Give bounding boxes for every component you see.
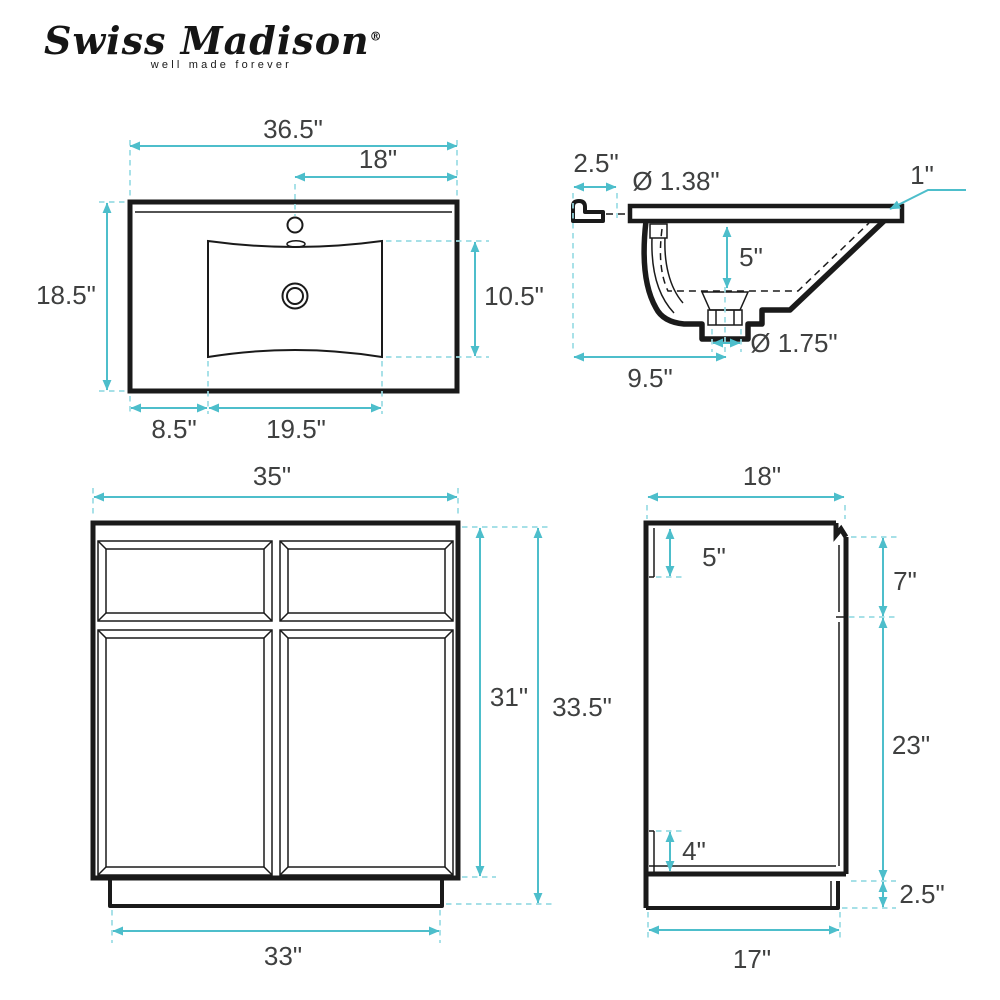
dimension-label: 2.5"	[573, 148, 618, 178]
dimension-label: Ø 1.75"	[750, 328, 837, 358]
dimension-label: 7"	[893, 566, 917, 596]
dim-bottom-back-panel: 4"	[656, 831, 706, 871]
dimension-label: 2.5"	[899, 879, 944, 909]
dim-top-back-panel: 5"	[656, 529, 726, 577]
miter-line	[264, 867, 272, 875]
panel-inner	[106, 638, 264, 867]
miter-line	[264, 541, 272, 549]
dimension-label: 17"	[733, 944, 771, 974]
cabinet-body-outline	[93, 523, 458, 878]
dimension-label: Ø 1.38"	[632, 166, 719, 196]
dimension-label: 35"	[253, 461, 291, 491]
countertop-outline	[130, 202, 457, 391]
miter-line	[280, 613, 288, 621]
dimension-label: 5"	[739, 242, 763, 272]
miter-line	[264, 613, 272, 621]
plinth-side	[646, 881, 838, 908]
miter-line	[445, 541, 453, 549]
dim-countertop-thickness: 1"	[890, 160, 966, 209]
miter-line	[445, 867, 453, 875]
panel-outer	[98, 541, 272, 621]
dim-faucet-hole-diameter: Ø 1.38"	[632, 166, 719, 196]
dim-toe-kick-height: 2.5"	[842, 879, 945, 909]
side-top-notch	[836, 523, 846, 537]
cabinet-side-view: 18" 5" 7" 23" 2.5"	[646, 461, 945, 974]
door-panel-left	[98, 630, 272, 875]
upper-panel-right	[280, 541, 453, 621]
countertop-section	[630, 206, 902, 221]
dimension-label: 23"	[892, 730, 930, 760]
dim-backsplash-depth: 2.5"	[573, 148, 619, 352]
dim-drawer-front-side: 7"	[849, 537, 917, 617]
sink-top-view: 36.5" 18" 18.5" 10.5"	[36, 114, 544, 444]
dim-faucet-to-right-edge: 18"	[295, 144, 457, 216]
upper-panel-left	[98, 541, 272, 621]
basin-wall-section	[644, 221, 884, 339]
drain-inner	[287, 288, 303, 304]
panel-outer	[98, 630, 272, 875]
side-back-and-top	[646, 523, 836, 908]
dimension-label: 9.5"	[627, 363, 672, 393]
faucet-hole	[288, 218, 303, 233]
panel-outer	[280, 630, 453, 875]
panel-outer	[280, 541, 453, 621]
dimension-label: 8.5"	[151, 414, 196, 444]
dimension-label: 1"	[910, 160, 934, 190]
miter-line	[445, 613, 453, 621]
dim-door-front-side: 23"	[851, 618, 930, 881]
cabinet-front-view: 35" 31" 33.5" 33"	[93, 461, 612, 971]
dim-base-depth: 17"	[648, 912, 840, 974]
spec-sheet: Swiss Madison® well made forever 36.5"	[0, 0, 1000, 1000]
miter-line	[98, 630, 106, 638]
overflow-channel-line	[665, 238, 683, 303]
dim-total-height: 33.5"	[446, 528, 612, 904]
backsplash-profile	[573, 201, 603, 221]
dim-overall-width: 36.5"	[130, 114, 457, 198]
plinth-front	[110, 880, 442, 906]
miter-line	[264, 630, 272, 638]
door-panel-right	[280, 630, 453, 875]
dimension-label: 19.5"	[266, 414, 326, 444]
miter-line	[445, 630, 453, 638]
dimension-label: 5"	[702, 542, 726, 572]
dimension-label: 4"	[682, 836, 706, 866]
miter-line	[98, 613, 106, 621]
dim-drain-diameter: Ø 1.75"	[712, 328, 838, 358]
miter-line	[98, 867, 106, 875]
dim-overall-depth: 18.5"	[36, 202, 127, 391]
dim-cabinet-width: 35"	[93, 461, 458, 518]
dim-basin-depth: 5"	[727, 227, 763, 288]
miter-line	[280, 630, 288, 638]
dimension-label: 18"	[359, 144, 397, 174]
dimension-label: 36.5"	[263, 114, 323, 144]
basin-hidden-line	[660, 223, 869, 291]
basin-outline	[208, 241, 382, 357]
dim-basin-width: 19.5"	[209, 361, 382, 444]
panel-inner	[288, 638, 445, 867]
dimension-label: 33.5"	[552, 692, 612, 722]
dim-cabinet-depth: 18"	[647, 461, 845, 519]
dim-left-edge-to-basin: 8.5"	[130, 361, 208, 444]
dim-back-to-drain-center: 9.5"	[574, 357, 726, 393]
panel-inner	[106, 549, 264, 613]
panel-inner	[288, 549, 445, 613]
dim-basin-front-to-back: 10.5"	[386, 241, 544, 357]
dim-base-width: 33"	[112, 910, 440, 971]
dimension-label: 18.5"	[36, 280, 96, 310]
miter-line	[280, 541, 288, 549]
miter-line	[98, 541, 106, 549]
sink-section-view: 2.5" Ø 1.38" 1" 5" Ø 1.75" 9.5"	[573, 148, 966, 393]
drawing-canvas: 36.5" 18" 18.5" 10.5"	[0, 0, 1000, 1000]
dimension-label: 33"	[264, 941, 302, 971]
dimension-label: 31"	[490, 682, 528, 712]
miter-line	[280, 867, 288, 875]
dimension-label: 18"	[743, 461, 781, 491]
dimension-label: 10.5"	[484, 281, 544, 311]
overflow-channel-top	[650, 224, 667, 238]
